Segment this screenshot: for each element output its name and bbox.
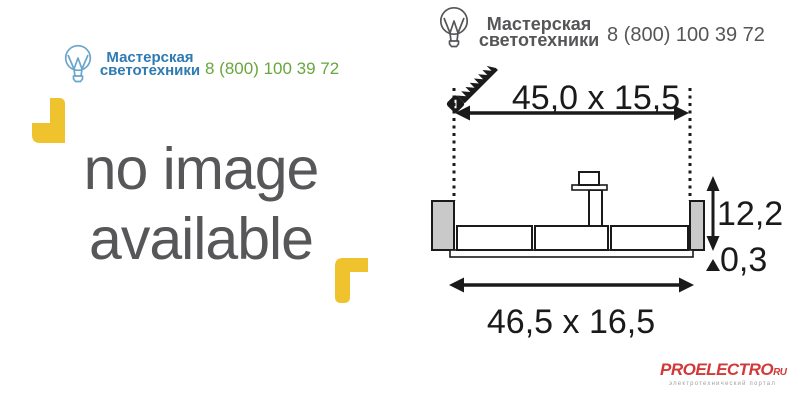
lamp-module-1 <box>457 226 532 250</box>
proelectro-logo: PROELECTRORU электротехнический портал <box>660 361 785 387</box>
technical-drawing: 45,0 x 15,5 12,2 <box>400 0 800 400</box>
overall-dimension-arrow <box>449 278 694 293</box>
placeholder-line1: no image <box>41 134 361 204</box>
ceiling-block-right <box>690 201 704 250</box>
logo-part-electro: ELECTRO <box>695 360 773 379</box>
cutout-dimension-label: 45,0 x 15,5 <box>512 79 680 117</box>
product-image-pair: Мастерская светотехники 8 (800) 100 39 7… <box>0 0 800 400</box>
placeholder-line2: available <box>41 204 361 274</box>
rim-dimension-label: 0,3 <box>720 241 767 279</box>
no-image-placeholder: no image available <box>41 134 361 274</box>
lamp-module-2 <box>535 226 608 250</box>
lamp-module-3 <box>611 226 688 250</box>
logo-part-pro: PRO <box>660 360 695 379</box>
rim-dimension-arrow <box>706 259 720 271</box>
fixture-baseplate <box>450 250 693 257</box>
overall-dimension-label: 46,5 x 16,5 <box>487 303 655 341</box>
logo-part-ru: RU <box>773 367 786 378</box>
mounting-stem <box>572 172 607 226</box>
logo-tagline: электротехнический портал <box>660 381 785 387</box>
depth-dimension-label: 12,2 <box>717 195 783 233</box>
ceiling-block-left <box>432 201 454 250</box>
